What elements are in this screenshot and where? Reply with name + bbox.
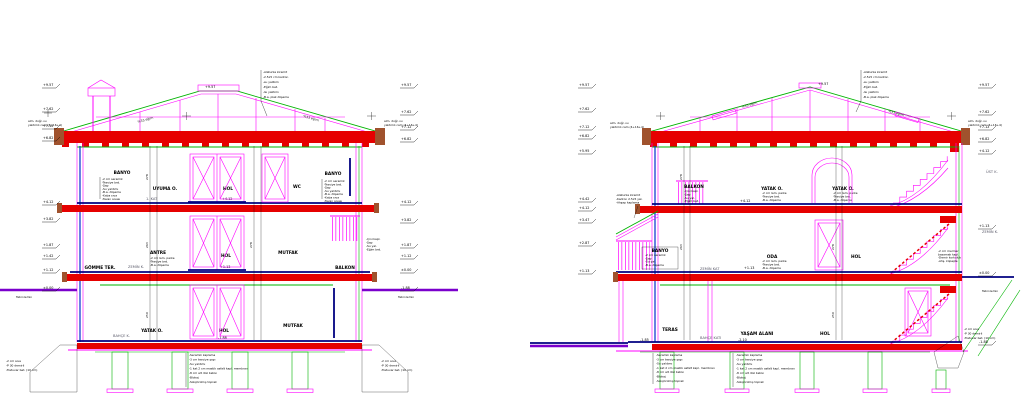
stair-flight [890,286,956,344]
svg-text:+1.12: +1.12 [401,254,411,258]
floor-label: 1. KAT [146,197,158,201]
grade-floor-note: -Seramik kaplama-3 cm tesviye şapı-Su ya… [189,353,248,384]
elevation-marker: +9.57 [42,83,60,88]
elevation-marker: +1.87 [400,243,418,248]
elevation-marker: ±0.00 [400,268,418,273]
elevation-marker: +9.57 [578,83,596,88]
elevation-marker: +6.82 [978,137,996,142]
door [815,220,843,270]
elevation-marker: -1.88 [978,340,996,345]
dim-text: 263 [679,244,683,250]
footing-note: -2 cm sıva-P 30 demirli-Tretuvar bet. (1… [6,359,38,372]
floor-slab-zemin [613,272,962,285]
elevation-marker: +5.95 [578,149,596,154]
eave-slab [57,131,382,143]
elevation-marker: +1.12 [400,254,418,259]
inline-elevation: +4.12 [740,199,750,203]
room-label: UYUMA O. [153,186,178,192]
dimension-lines [150,146,261,340]
elevation-marker: +4.42 [578,197,596,202]
svg-text:+1.87: +1.87 [43,243,53,247]
svg-text:+1.12: +1.12 [43,268,53,272]
elevation-marker: +1.87 [42,243,60,248]
elevation-marker: +3.47 [578,218,596,223]
roof-posts [110,94,325,131]
roof-note: -Alaturka kiremit-2.5x5 cm kadron-su yal… [263,70,289,99]
material-note: -2 cm lam. parke-Tesviye bet.-B.a. döşem… [762,259,787,270]
footing-note: -2 cm sıva-P 30 demirli-Tretuvar bet. (1… [964,327,996,340]
axis-marker [44,109,376,120]
balcony-railing [330,216,360,229]
grade-floor-note: -Seramik kaplama-3 cm tesviye şapı-Su ya… [736,353,795,384]
material-note: -Çini kapl.-Şap-Su yal.-Eğim bet. [684,189,699,203]
room-label: TERAS [662,327,678,333]
roof-fascia [57,91,382,133]
svg-text:+9.57: +9.57 [43,83,53,87]
ridge-elevation: +9.57 [818,82,828,86]
elevation-marker: +6.82 [578,134,596,139]
svg-text:+4.12: +4.12 [401,200,411,204]
material-note: -2 cm lam. parke-Tesviye bet.-B.a. döşem… [762,191,787,202]
eave-note: alm. doğr. ısıyalıtımlı cam (4+16+4) [610,121,644,129]
elevation-marker: +3.82 [400,218,418,223]
svg-text:+7.12: +7.12 [579,125,589,129]
room-label: YAŞAM ALANI [740,331,774,337]
elevation-marker: +6.82 [400,137,418,142]
ground-slab [616,342,968,351]
elevation-marker: ±0.00 [978,271,996,276]
svg-text:+7.62: +7.62 [979,110,989,114]
dim-text: 278 [249,242,253,248]
elevation-marker: +9.57 [978,83,996,88]
svg-text:+7.62: +7.62 [579,107,589,111]
room-label: YATAK O. [140,328,163,334]
room-label: HOL [820,331,830,337]
room-label: HOL [223,186,233,192]
ridge-elevation: +9.57 [205,85,215,89]
left-section: +9.57 %33 eğim %33 eğim -Alaturka kiremi… [0,70,458,393]
svg-text:-1.88: -1.88 [401,286,410,290]
elevation-marker: +1.13 [978,224,996,229]
room-label: HOL [851,254,861,260]
stair-flight [886,156,948,209]
window [190,285,244,339]
svg-text:+9.57: +9.57 [579,83,589,87]
inline-elevation: +1.13 [744,266,754,270]
svg-text:±0.00: ±0.00 [401,268,411,272]
grade-floor-note: -Seramik kaplama-3 cm tesviye şapı-Su ya… [656,353,715,383]
room-label: GÖMME TER. [84,264,115,271]
exterior-walls [652,143,962,342]
floor-label: BAHÇE KATI [700,336,721,340]
floor-slab-zemin [62,272,377,285]
svg-text:+7.12: +7.12 [979,125,989,129]
elevation-marker: +7.62 [42,107,60,112]
floor-label: BAHÇE K. [113,334,130,338]
margin-floor-label: ÜST K. [986,169,998,174]
cad-canvas: +9.57 %33 eğim %33 eğim -Alaturka kiremi… [0,0,1024,418]
window [188,216,246,270]
material-note: -2 cm lam. parke-Tesviye bet.-B.a. döşem… [150,256,175,267]
room-label: MUTFAK [278,250,298,256]
ground-label: Tabii zemin [981,289,998,293]
svg-text:+3.82: +3.82 [43,217,53,221]
elevation-marker: +7.62 [400,110,418,115]
cad-sheet: +9.57 %33 eğim %33 eğim -Alaturka kiremi… [0,0,1024,418]
footing [934,336,964,368]
room-label: HOL [219,328,229,334]
svg-text:+6.82: +6.82 [43,136,53,140]
grade-slope [978,290,1020,356]
svg-text:+1.42: +1.42 [43,254,53,258]
dim-text: 250 [831,312,835,318]
floor-label: ZEMİN KAT [700,266,720,271]
window [262,154,288,202]
right-section: +9.57 %33 eğim %33 eğim -Alaturka kiremi… [530,70,1020,393]
floor-slab-1kat [57,203,379,213]
svg-text:+1.13: +1.13 [579,269,589,273]
footing-note: -2 cm sıva-P 30 demirli-Tretuvar bet. (1… [381,359,413,372]
svg-text:+7.62: +7.62 [43,107,53,111]
dim-text: 263 [145,242,149,248]
shed-note: -Alaturka kiremit-Kadron 2.5x5 yal.-Ahşa… [616,193,642,205]
svg-text:±0.00: ±0.00 [43,286,53,290]
svg-text:±0.00: ±0.00 [979,271,989,275]
material-note: -2 cm seramik-Tesviye bet.-Şap-Su yalıtı… [102,177,123,201]
svg-text:+7.62: +7.62 [401,110,411,114]
foundation-piers [655,352,950,393]
window [188,154,246,202]
svg-text:+9.57: +9.57 [979,83,989,87]
dim-text: 250 [145,312,149,318]
room-label: BALKON [335,265,355,271]
room-label: BANYO [114,170,131,176]
floor-label: ZEMİN K. [128,264,144,269]
elevation-marker: +4.12 [978,149,996,154]
svg-text:+1.87: +1.87 [401,243,411,247]
elevation-marker: +3.82 [42,217,60,222]
elevation-marker: +4.12 [578,206,596,211]
roof-fascia [645,87,968,133]
elevation-marker: +1.13 [578,269,596,274]
material-note: -2 cm lam. parke-Tesviye bet.-B.a. döşem… [833,191,858,202]
ground-label: Tabii zemin [397,295,414,299]
room-label: MUTFAK [283,323,303,329]
material-note: -2 cm seramik-Şap-Su yal.-B.a. döşeme [645,253,666,267]
roof-slope-label: %33 eğim [303,114,320,122]
elevation-marker: +7.12 [578,125,596,130]
room-label: BANYO [325,171,342,177]
elevation-marker: +1.42 [42,254,60,259]
svg-text:+4.12: +4.12 [979,149,989,153]
svg-text:+7.12: +7.12 [401,125,411,129]
room-label: WC [293,184,301,190]
elevation-marker: +7.62 [978,110,996,115]
dim-text: 278 [679,174,683,180]
elevation-marker: +4.12 [400,200,418,205]
ground-label: Tabii zemin [15,295,32,299]
svg-text:+6.82: +6.82 [401,137,411,141]
margin-floor-label: ZEMİN K. [982,229,998,234]
svg-text:+6.82: +6.82 [979,137,989,141]
elevation-marker: +1.12 [42,268,60,273]
elevation-marker: +7.62 [578,107,596,112]
roof-slope-label: %33 eğim [741,101,758,109]
inline-elevation: -1.88 [218,336,227,340]
svg-text:-1.88: -1.88 [979,340,988,344]
svg-text:+6.82: +6.82 [579,134,589,138]
svg-text:+4.42: +4.42 [579,197,589,201]
svg-text:+9.57: +9.57 [401,83,411,87]
stair-note: -2 cm mermerbasamak kapl.-Demir korkuluk… [938,249,961,263]
room-label: HOL [221,253,231,259]
svg-text:+4.12: +4.12 [43,200,53,204]
elevation-marker: +2.87 [578,241,596,246]
elevation-marker: +9.57 [400,83,418,88]
svg-text:+1.13: +1.13 [979,224,989,228]
stair-flight [890,216,956,274]
svg-text:+7.12: +7.12 [43,124,53,128]
svg-text:+3.82: +3.82 [401,218,411,222]
svg-text:+5.95: +5.95 [579,149,589,153]
side-note: -Çini kapl.-Şap-Su yal.-Eğim bet. [366,237,381,252]
ground-slab [68,341,372,350]
eave-slab [645,131,968,143]
material-note: -2 cm seramik-Tesviye bet.-Şap-Su yalıtı… [324,179,345,203]
svg-text:+3.47: +3.47 [579,218,589,222]
dim-text: 278 [145,174,149,180]
svg-text:+4.12: +4.12 [579,206,589,210]
dim-text: 278 [831,244,835,250]
svg-text:+2.87: +2.87 [579,241,589,245]
roof-note: -Alaturka kiremit-2.5x5 cm kadron-su yal… [863,70,889,99]
